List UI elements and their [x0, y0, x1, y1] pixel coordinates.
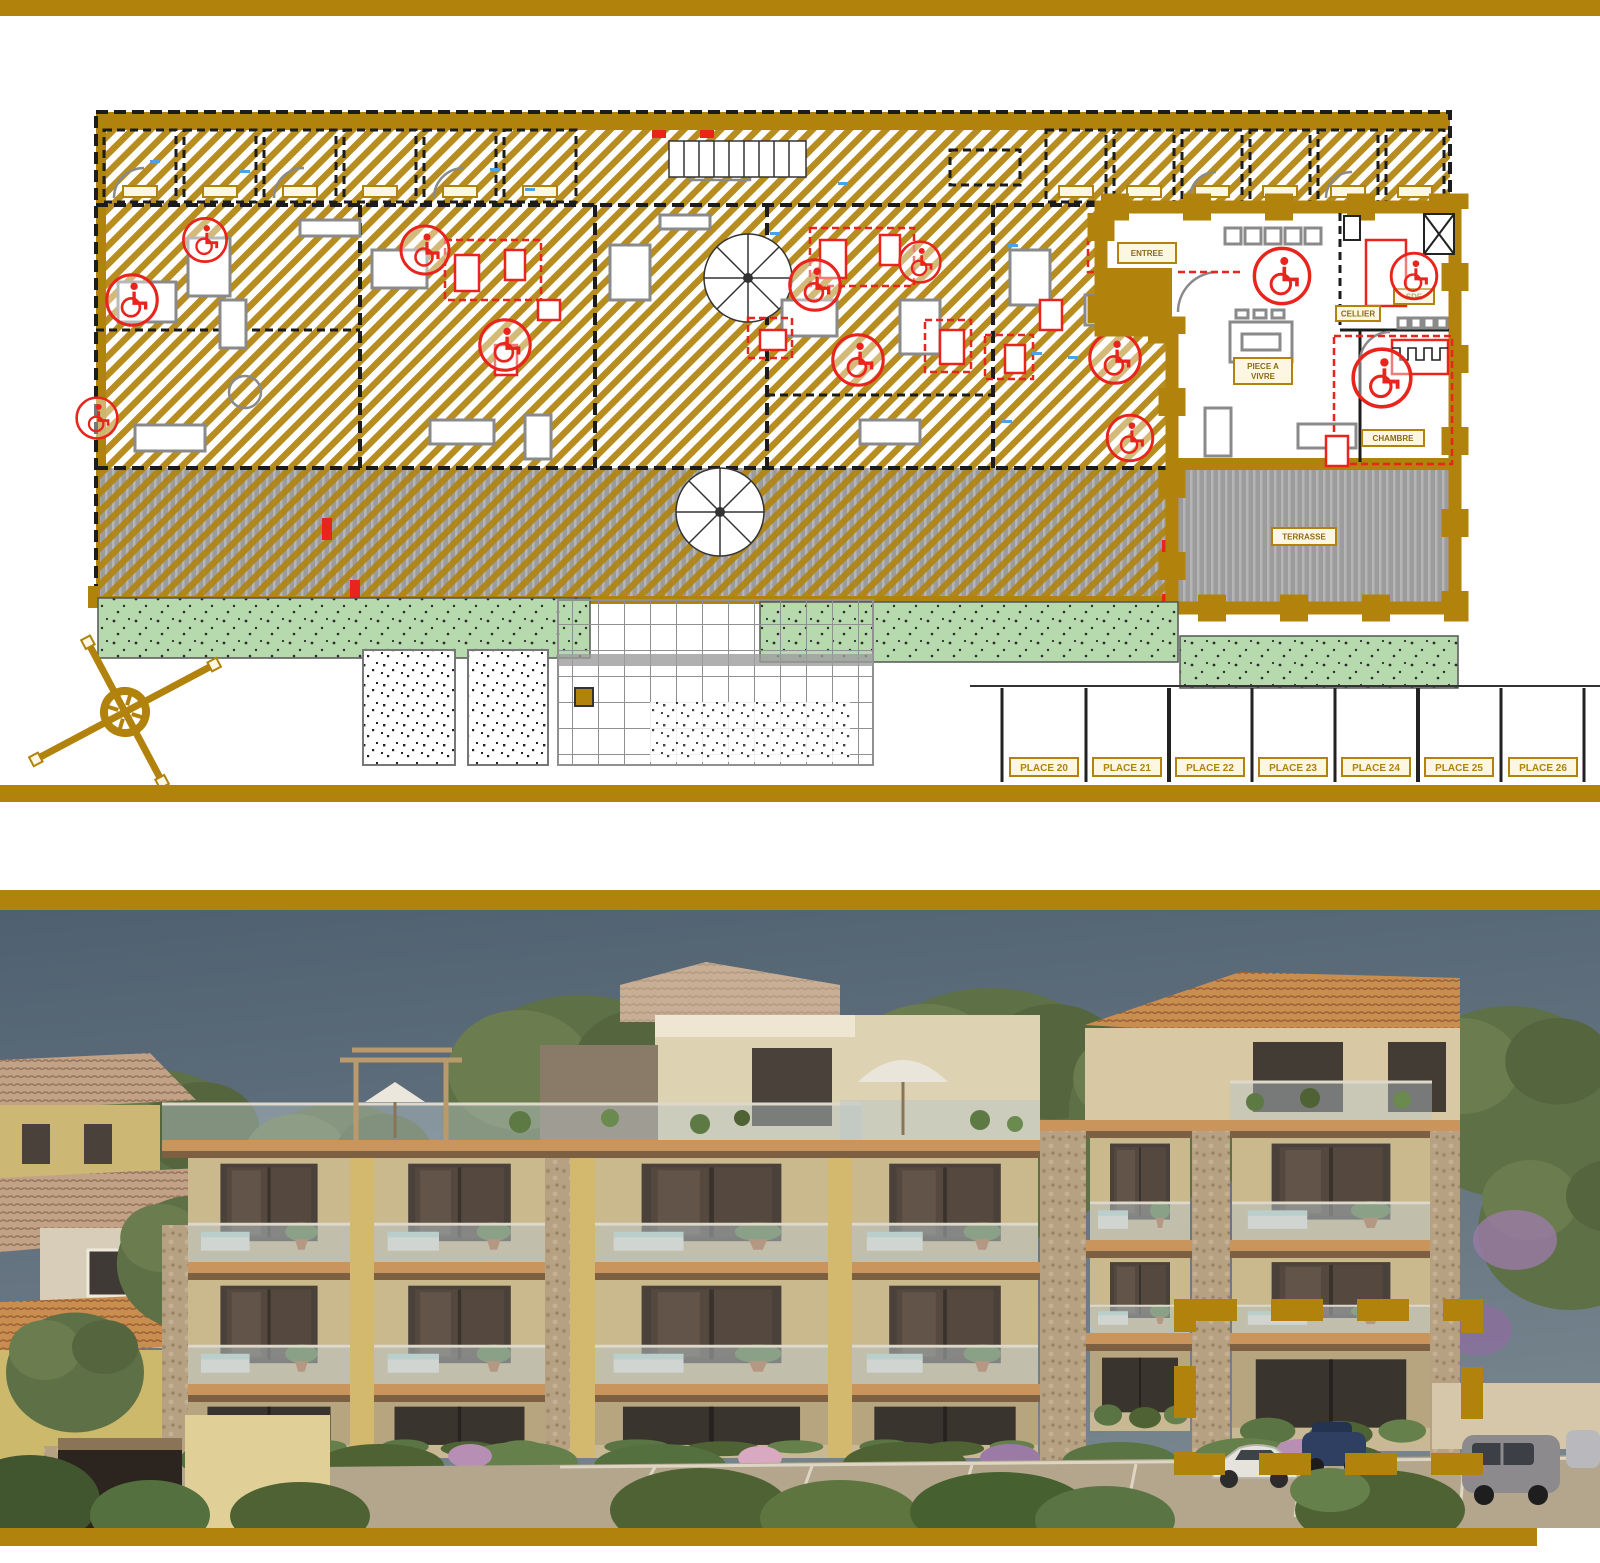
- gold-bar-under-plan: [0, 785, 1600, 802]
- svg-text:PLACE 23: PLACE 23: [1269, 763, 1317, 774]
- brochure-page: ENTREE PIECE A VIVRE CELLIER SDE CHAMBRE…: [0, 0, 1600, 1563]
- parking-row: PLACE 20 PLACE 21 PLACE 22 PLACE 23 PLAC…: [970, 686, 1600, 782]
- building-render: [0, 910, 1600, 1528]
- floor-plan: ENTREE PIECE A VIVRE CELLIER SDE CHAMBRE…: [0, 0, 1600, 785]
- room-label-cellier: CELLIER: [1341, 310, 1375, 319]
- room-label-entree: ENTREE: [1131, 249, 1164, 258]
- room-label-chambre: CHAMBRE: [1373, 434, 1415, 443]
- room-label-piece-a-vivre: PIECE A: [1247, 362, 1279, 371]
- stair-run: [669, 141, 806, 177]
- svg-text:PLACE 22: PLACE 22: [1186, 763, 1234, 774]
- svg-text:PLACE 20: PLACE 20: [1020, 763, 1068, 774]
- car-partial: [1566, 1430, 1600, 1468]
- svg-text:PLACE 25: PLACE 25: [1435, 763, 1483, 774]
- gold-bar-bottom: [0, 1528, 1537, 1546]
- svg-text:VIVRE: VIVRE: [1251, 372, 1276, 381]
- gold-bar-above-render: [0, 890, 1600, 910]
- svg-text:PLACE 21: PLACE 21: [1103, 763, 1151, 774]
- svg-text:PLACE 26: PLACE 26: [1519, 763, 1567, 774]
- svg-text:PLACE 24: PLACE 24: [1352, 763, 1400, 774]
- room-label-terrasse: TERRASSE: [1282, 533, 1326, 542]
- parking-space-label: PLACE 20 PLACE 21 PLACE 22 PLACE 23 PLAC…: [1010, 758, 1577, 776]
